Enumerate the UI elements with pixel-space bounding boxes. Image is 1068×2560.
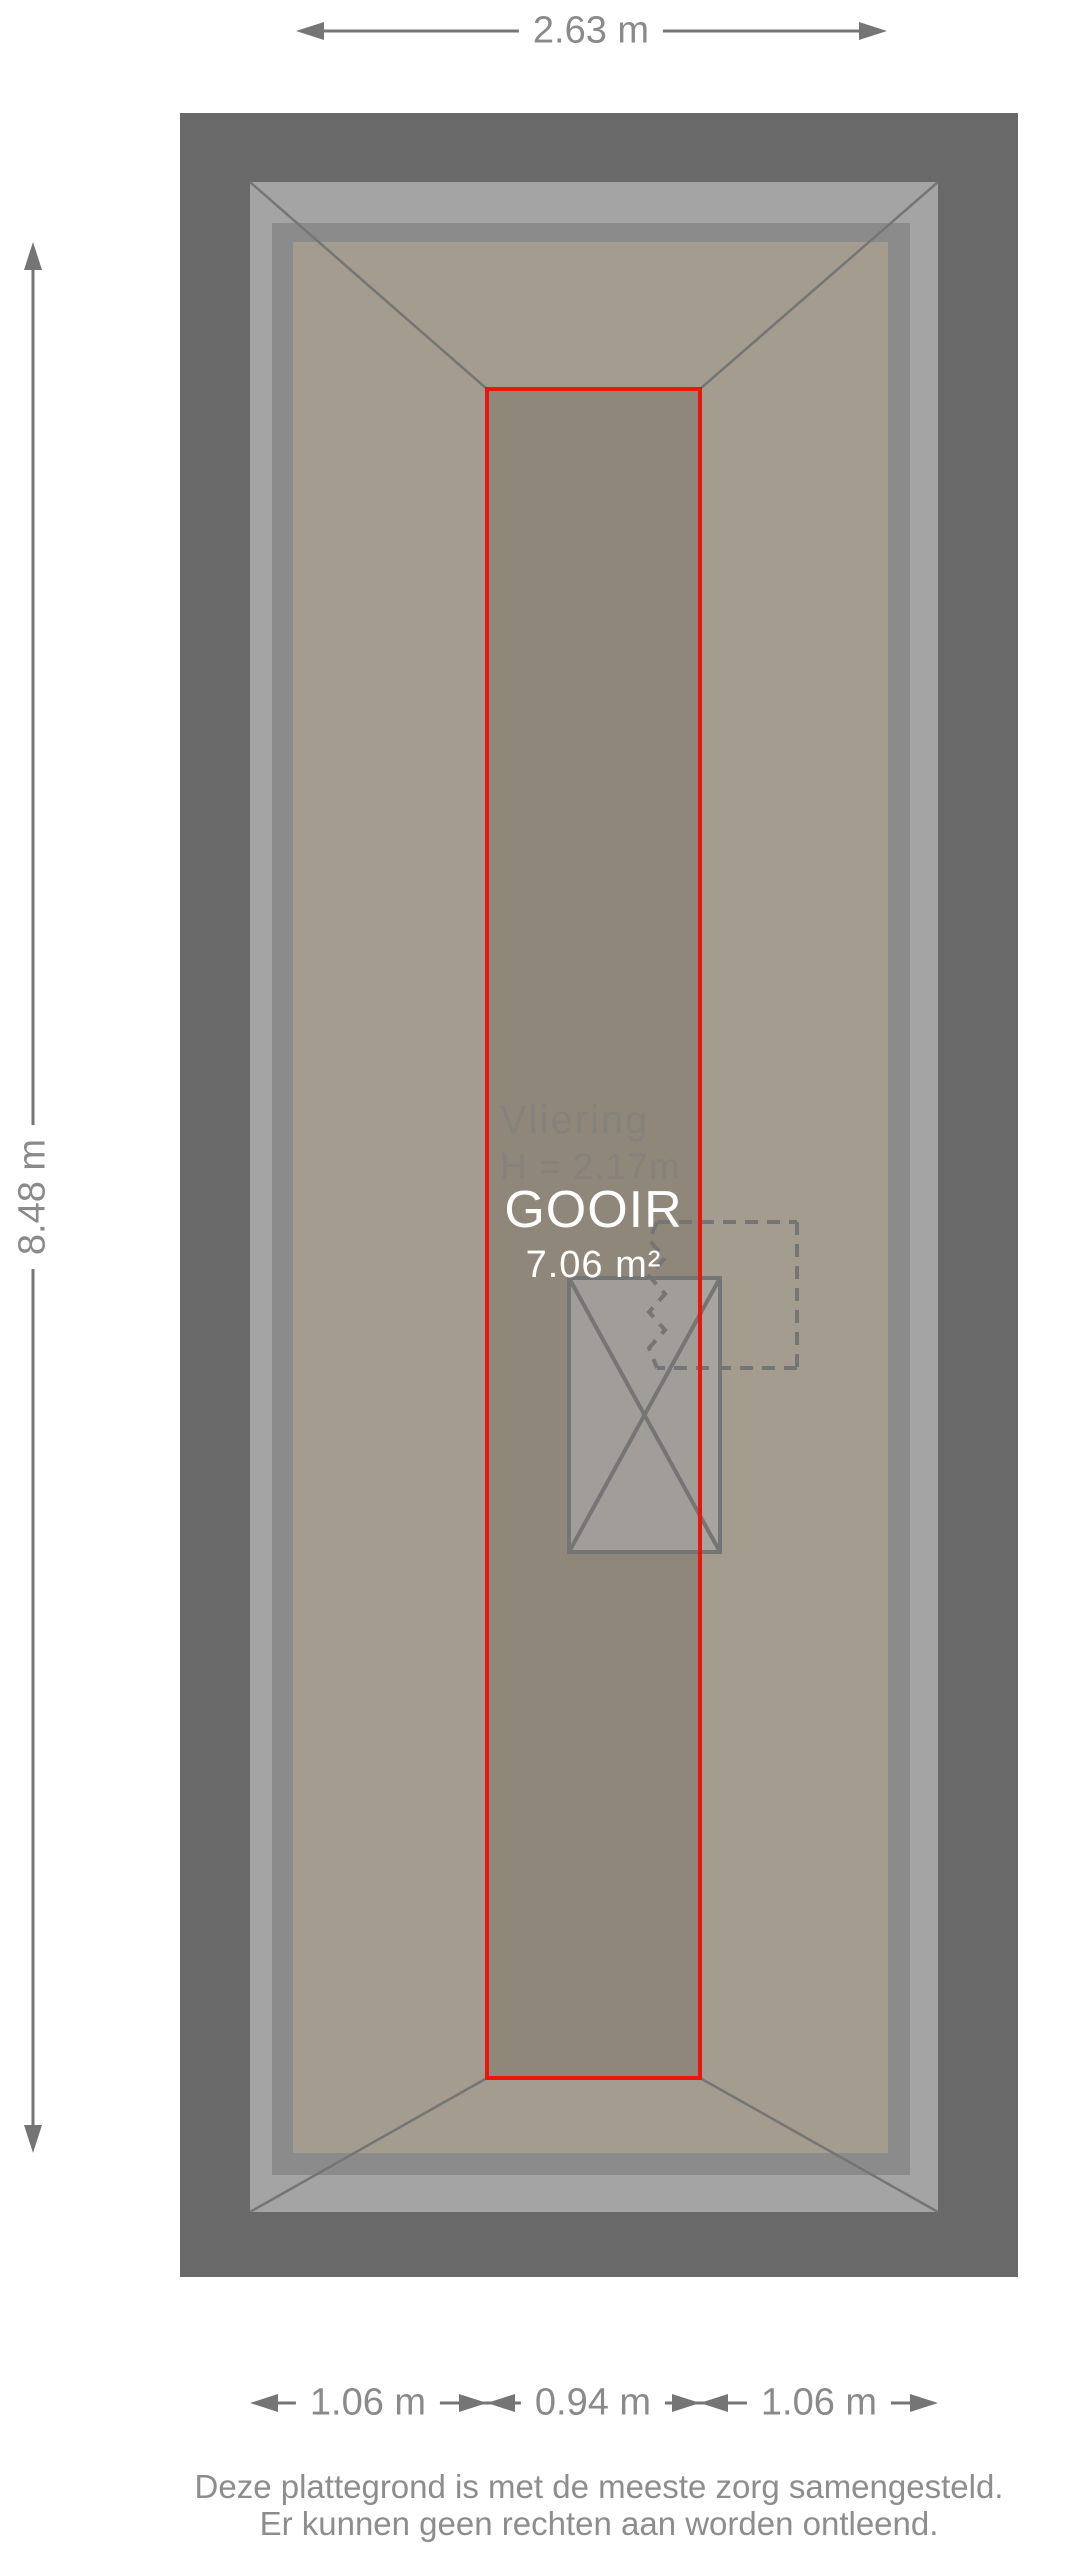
hip-line-bottom-left (250, 2078, 487, 2212)
watermark-label: GOOIR (485, 1180, 702, 1240)
dimension-bottom-label-1: 1.06 m (296, 2380, 440, 2427)
disclaimer-line-2: Er kunnen geen rechten aan worden ontlee… (130, 2505, 1068, 2542)
room-name-label: Vliering (500, 1098, 649, 1143)
dimension-bottom-label-2: 0.94 m (521, 2380, 665, 2427)
arrow-left-icon (296, 22, 324, 40)
floorplan-canvas: Vliering H = 2.17m GOOIR 7.06 m² 2.63 m … (0, 0, 1068, 2560)
dimension-left-label: 8.48 m (10, 1125, 57, 1269)
arrow-left-icon (250, 2394, 278, 2412)
hip-line-bottom-right (700, 2078, 938, 2212)
arrow-right-icon (459, 2394, 487, 2412)
arrow-right-icon (859, 22, 887, 40)
arrow-right-icon (910, 2394, 938, 2412)
dimension-top-label: 2.63 m (519, 8, 663, 55)
room-area-label: 7.06 m² (485, 1244, 702, 1287)
disclaimer: Deze plattegrond is met de meeste zorg s… (130, 2468, 1068, 2542)
arrow-up-icon (24, 242, 42, 270)
arrow-left-icon (487, 2394, 515, 2412)
hip-line-top-left (250, 182, 487, 389)
hip-line-top-right (700, 182, 938, 389)
arrow-left-icon (700, 2394, 728, 2412)
arrow-down-icon (24, 2125, 42, 2153)
disclaimer-line-1: Deze plattegrond is met de meeste zorg s… (130, 2468, 1068, 2505)
arrow-right-icon (672, 2394, 700, 2412)
dimension-bottom-label-3: 1.06 m (747, 2380, 891, 2427)
